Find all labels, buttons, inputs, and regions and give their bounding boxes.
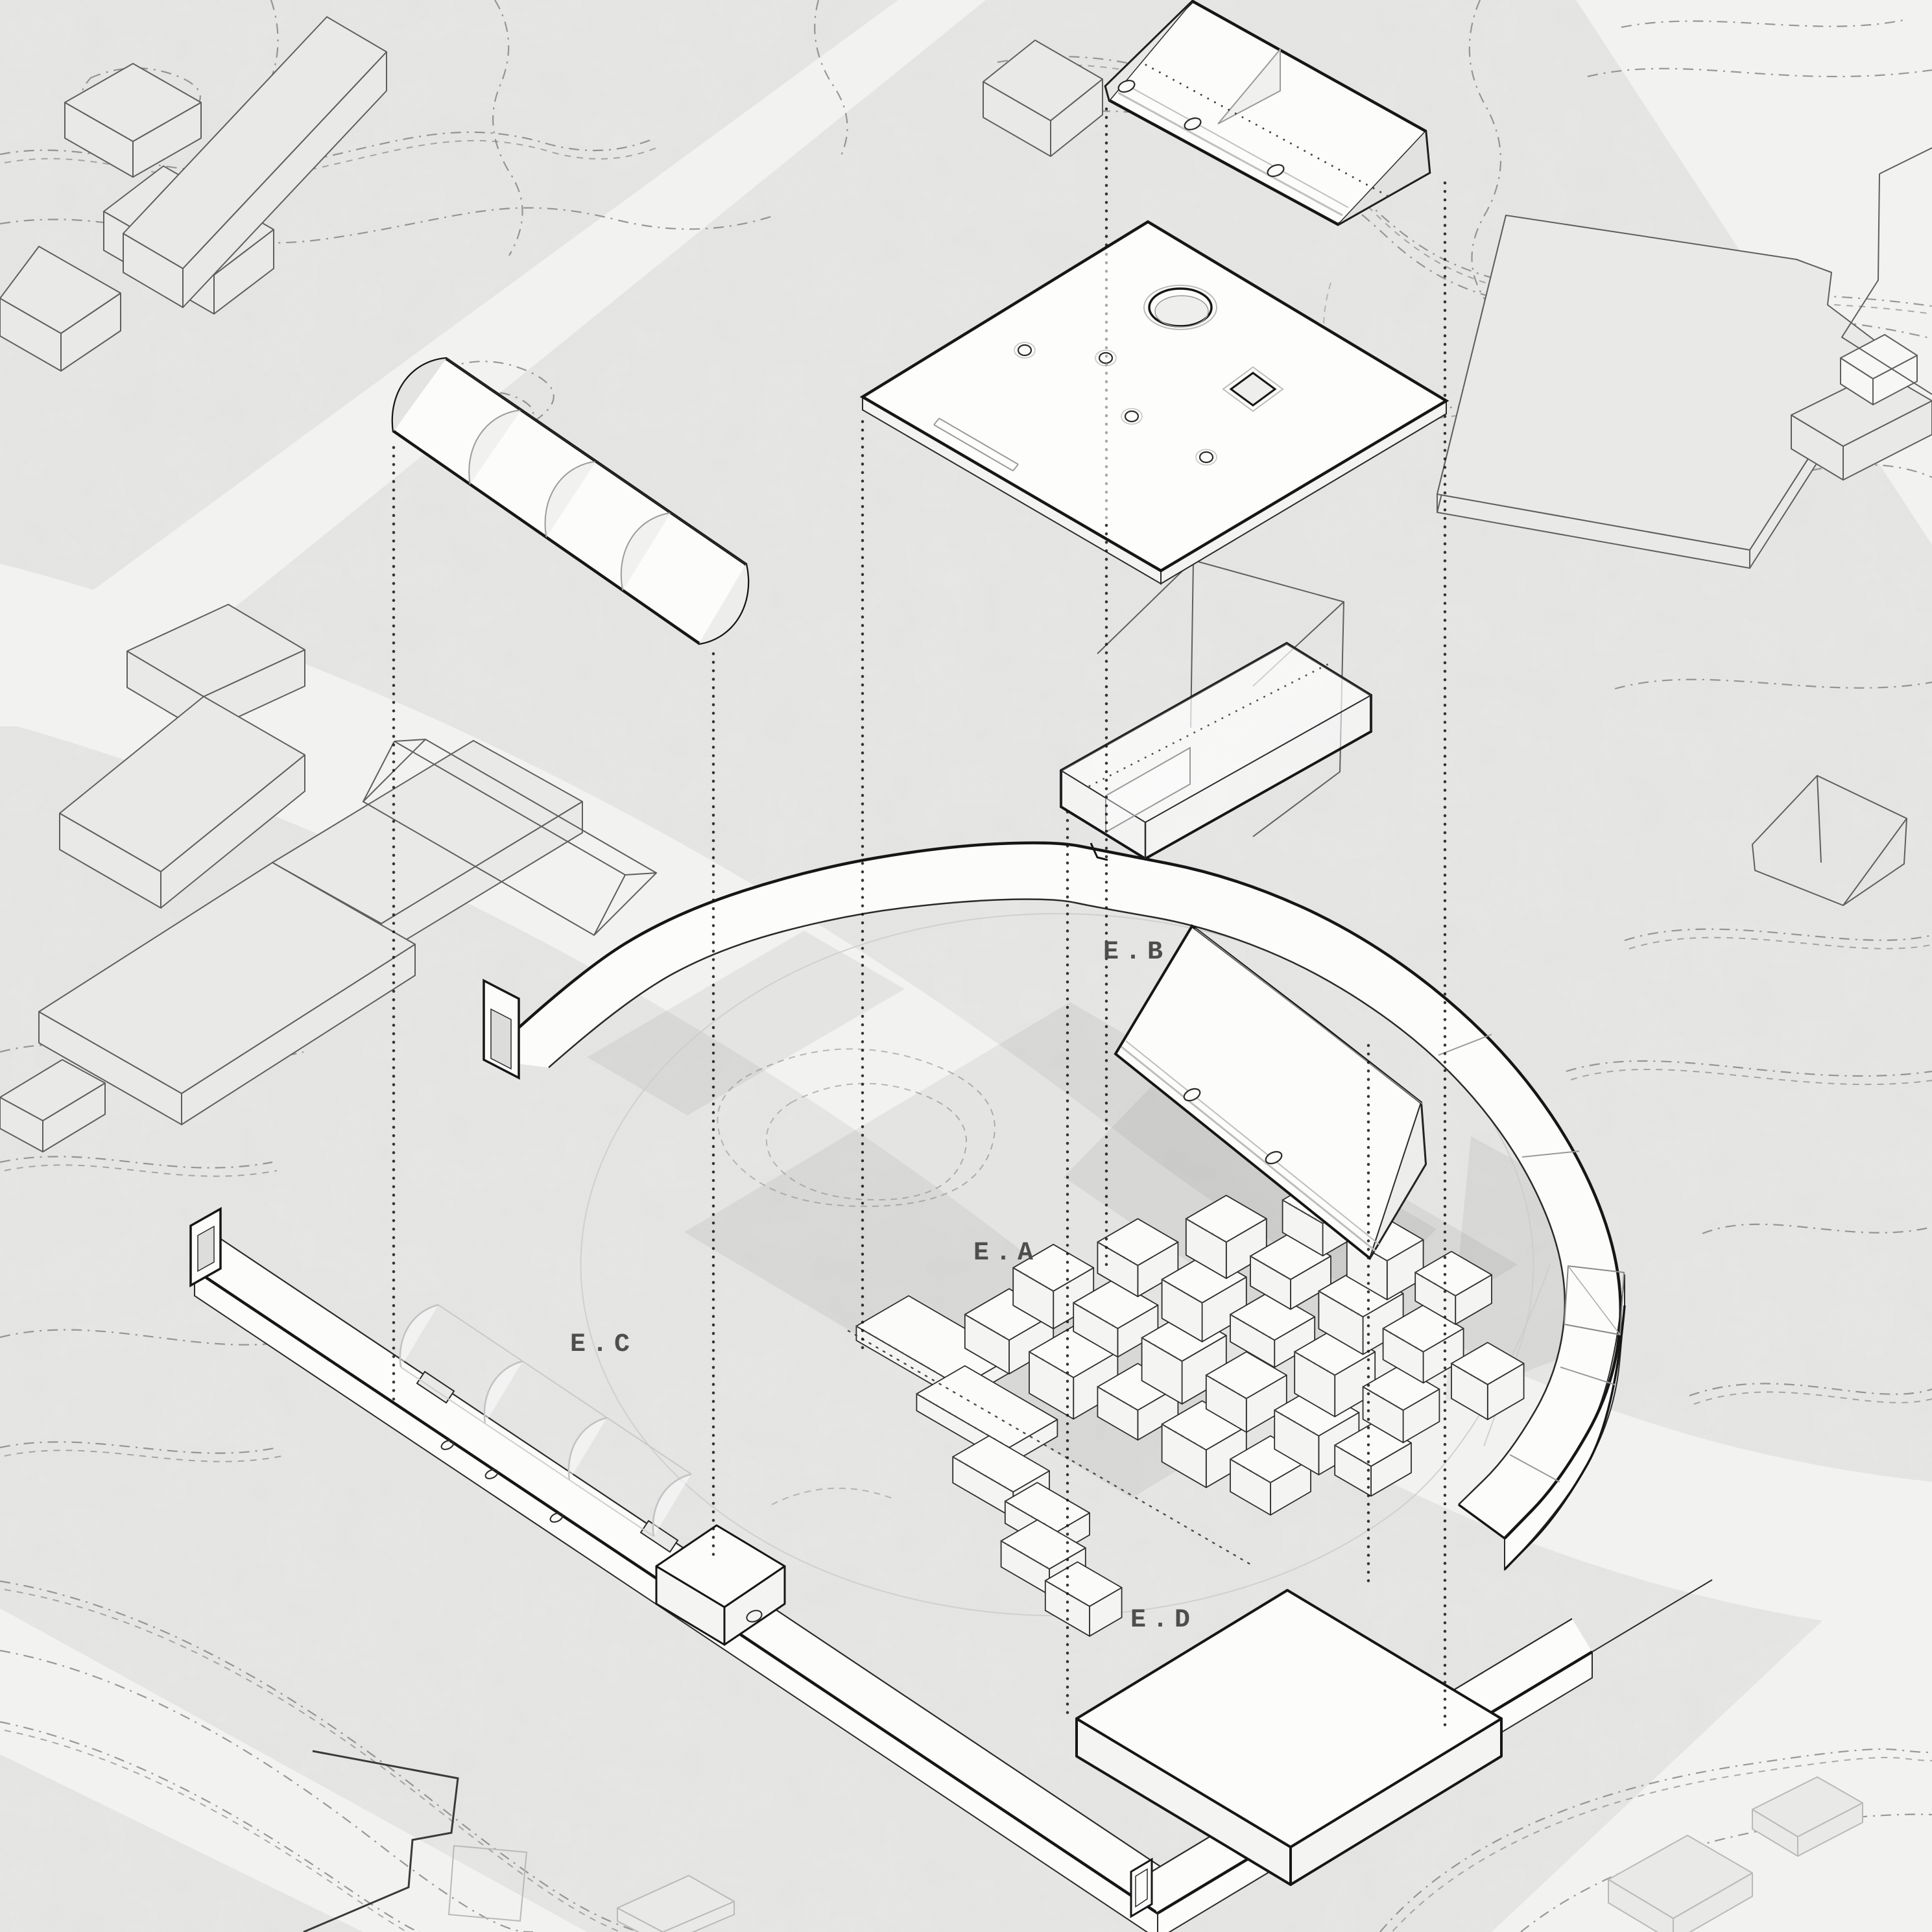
label-EA: E.A [973,1239,1040,1268]
label-EB: E.B [1103,938,1169,967]
label-ED: E.D [1130,1606,1197,1635]
label-EC: E.C [570,1330,636,1359]
exploded-axonometric-drawing: E.A E.B E.C E.D [0,0,1932,1932]
